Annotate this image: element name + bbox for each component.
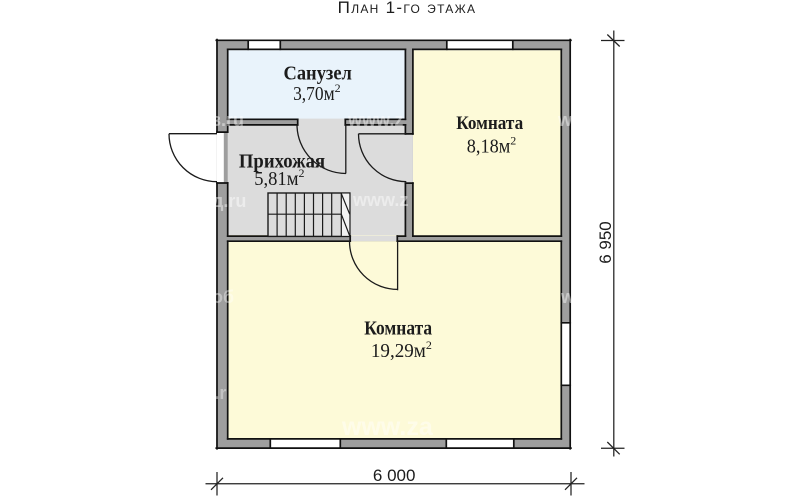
svg-text:Комната: Комната	[456, 113, 523, 134]
svg-text:Комната: Комната	[364, 318, 432, 339]
svg-text:3,70м2: 3,70м2	[293, 81, 341, 105]
svg-text:6 950: 6 950	[596, 221, 615, 264]
svg-text:ww: ww	[557, 110, 587, 130]
svg-text:www.z: www.z	[347, 110, 403, 130]
svg-text:д.ru: д.ru	[212, 191, 246, 211]
svg-text:8,18м2: 8,18м2	[467, 133, 517, 157]
svg-text:5,81м2: 5,81м2	[254, 166, 304, 190]
svg-text:д.r: д.r	[203, 383, 226, 403]
svg-text:Санузел: Санузел	[284, 62, 352, 84]
svg-text:План 1-го этажа: План 1-го этажа	[338, 0, 477, 17]
svg-text:з.ru: з.ru	[212, 110, 244, 130]
svg-text:об: об	[212, 287, 234, 307]
svg-text:www.z: www.z	[352, 190, 408, 210]
svg-text:19,29м2: 19,29м2	[371, 338, 432, 362]
svg-text:6 000: 6 000	[373, 466, 416, 485]
svg-text:w: w	[560, 287, 576, 307]
svg-text:www.za: www.za	[341, 413, 434, 441]
